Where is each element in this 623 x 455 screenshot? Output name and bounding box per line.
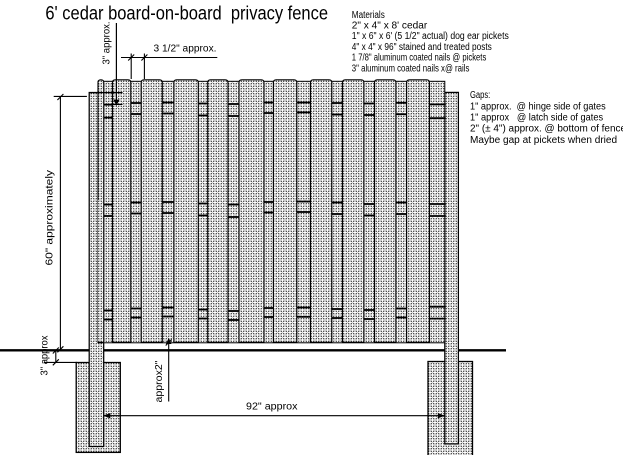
svg-text:Maybe gap at pickets when drie: Maybe gap at pickets when dried [470,135,617,146]
svg-text:3 1/2" approx.: 3 1/2" approx. [154,44,217,55]
svg-text:1" approx @ latch side of ga: 1" approx @ latch side of gates [470,112,603,123]
svg-text:92" approx: 92" approx [246,402,298,413]
svg-text:3" approx.: 3" approx. [102,22,113,65]
svg-text:Materials: Materials [352,10,385,21]
svg-text:3" aluminum coated nails x@ ra: 3" aluminum coated nails x@ rails [352,63,470,74]
svg-text:60" approximately: 60" approximately [45,170,56,266]
svg-text:2" (± 4") approx. @ bottom of: 2" (± 4") approx. @ bottom of fence [470,124,623,135]
svg-text:4" x 4" x 96" stained and trea: 4" x 4" x 96" stained and treated posts [352,42,492,53]
svg-text:2" x 4" x 8' cedar: 2" x 4" x 8' cedar [352,21,428,32]
svg-text:Gaps:: Gaps: [470,90,490,101]
svg-text:3" approx: 3" approx [40,336,51,376]
svg-text:6' cedar board-on-board priva: 6' cedar board-on-board privacy fence [45,3,328,25]
svg-text:1" x 6" x 6' (5 1/2" actual) d: 1" x 6" x 6' (5 1/2" actual) dog ear pic… [352,31,509,42]
svg-text:approx2": approx2" [154,360,165,402]
svg-text:1 7/8" aluminum coated nails @: 1 7/8" aluminum coated nails @ pickets [352,53,487,64]
svg-text:1" approx. @ hinge side of ga: 1" approx. @ hinge side of gates [470,102,606,113]
